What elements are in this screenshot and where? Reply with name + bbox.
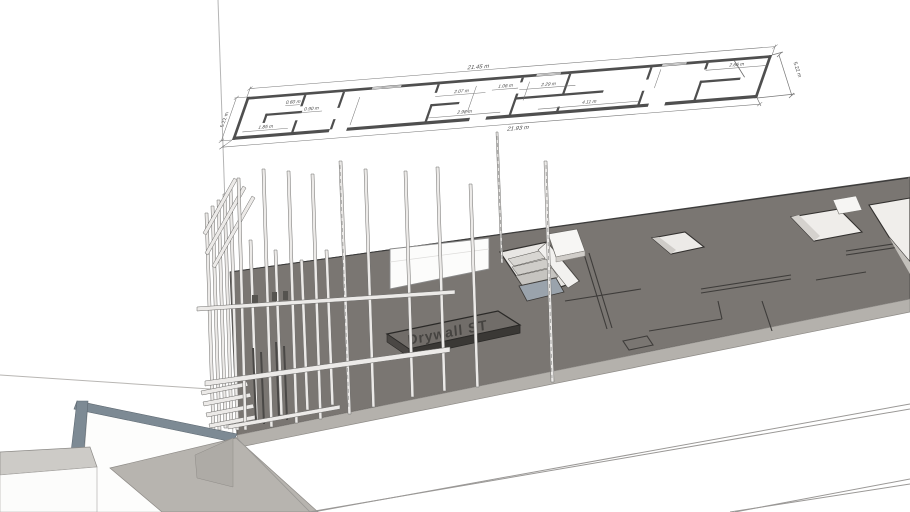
lower-building-box[interactable] — [0, 447, 97, 512]
ground-guide-line — [0, 375, 225, 390]
plan-dimension-labels: 21.45 m 21.93 m 5.22 m 0.60 m 0.90 m 1.8… — [209, 43, 751, 156]
box-front-face — [0, 467, 97, 512]
viewport-3d[interactable]: 21.45 m 21.93 m 5.22 m 0.60 m 0.90 m 1.8… — [0, 0, 910, 512]
plan-walls — [232, 55, 772, 140]
dim-total-bottom: 21.93 m — [506, 125, 530, 132]
scene-canvas[interactable]: 21.45 m 21.93 m 5.22 m 0.60 m 0.90 m 1.8… — [0, 0, 910, 512]
dim-total-top: 21.45 m — [466, 64, 490, 71]
ground-slab-edges — [309, 404, 910, 512]
dim-side-right: 5.22 m — [792, 61, 803, 78]
